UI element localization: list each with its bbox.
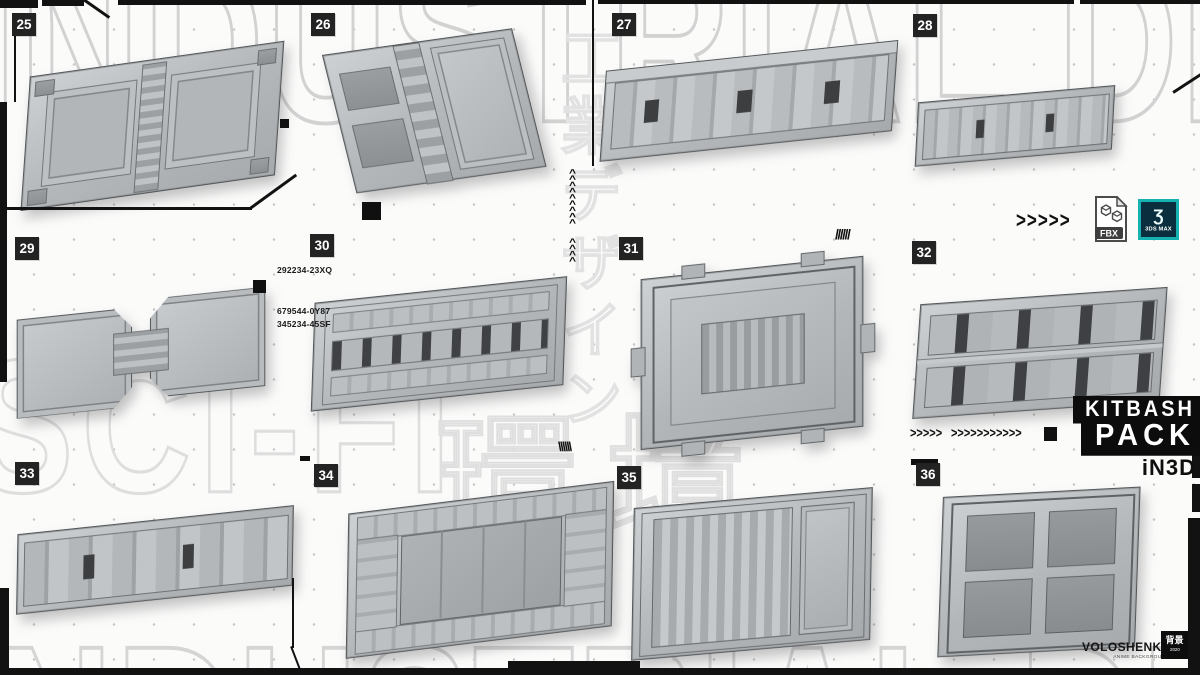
vertical-divider (592, 0, 594, 166)
kanji-stamp: 背景 2020 (1161, 631, 1188, 659)
model-26-render (322, 28, 544, 191)
marker-square (253, 280, 266, 293)
3dsmax-app-icon: Ʒ 3DS MAX (1138, 199, 1179, 240)
bottom-black-band (508, 661, 640, 670)
border-segment (118, 0, 586, 5)
model-31-render (641, 256, 862, 448)
3dsmax-label: 3DS MAX (1145, 225, 1172, 231)
divider-diagonal (249, 174, 297, 210)
marker-square (362, 202, 381, 220)
model-35-render (631, 487, 871, 659)
item-number-34: 34 (314, 464, 338, 487)
model-28-render (915, 85, 1114, 165)
3dsmax-logo-glyph: Ʒ (1153, 207, 1163, 224)
hatch-slashes-icon: \\\\\\ (558, 439, 571, 454)
item-number-32: 32 (912, 241, 936, 264)
author-credit: VOLOSHENKO ANIME BACKGROUNDS (1082, 640, 1160, 663)
item-number-36: 36 (916, 463, 940, 486)
author-subtitle: ANIME BACKGROUNDS (1113, 654, 1160, 659)
serial-code: 345234-45SF (277, 319, 331, 329)
author-name: VOLOSHENKO (1082, 640, 1160, 654)
model-34-render (346, 481, 613, 657)
kitbash-title-line2: PACK (1081, 419, 1200, 456)
item-number-25: 25 (12, 13, 36, 36)
corner-diagonal (1172, 73, 1200, 93)
item-number-26: 26 (311, 13, 335, 36)
fbx-file-icon: FBX (1094, 196, 1128, 242)
left-border-bar (0, 102, 7, 382)
chevron-arrows-up-icon: >>>>>>>>> (566, 168, 579, 224)
right-border-bar (1188, 518, 1200, 675)
item-number-27: 27 (612, 13, 636, 36)
model-25-render (21, 41, 283, 209)
marker-bar (300, 456, 310, 461)
border-segment (0, 0, 38, 8)
border-slash (82, 0, 110, 19)
chevron-arrows-icon: >>>>> (1016, 208, 1071, 234)
marker-square (1044, 427, 1057, 441)
item-number-31: 31 (619, 237, 643, 260)
border-segment (1080, 0, 1200, 4)
item-number-35: 35 (617, 466, 641, 489)
border-segment (598, 0, 1074, 4)
left-thin-line (14, 36, 16, 102)
model-27-render (600, 40, 897, 160)
item-number-28: 28 (913, 14, 937, 37)
model-33-render (16, 505, 292, 612)
item-number-30: 30 (310, 234, 334, 257)
chevron-arrows-icon: >>>>> (910, 426, 942, 441)
model-30-render (311, 276, 565, 409)
serial-code: 679544-0Y87 (277, 306, 330, 316)
chevron-arrows-up-icon: >>>> (566, 237, 579, 262)
serial-code: 292234-23XQ (277, 265, 332, 275)
studio-logo: iN3D (1142, 455, 1200, 481)
hatch-slashes-icon: ////// (835, 226, 849, 242)
stamp-year: 2020 (1170, 648, 1180, 652)
border-segment (42, 0, 84, 6)
bottom-left-bar (0, 588, 9, 675)
divider-line (0, 207, 252, 210)
item-number-29: 29 (15, 237, 39, 260)
right-border-segment (1192, 484, 1200, 512)
model-36-render (937, 487, 1138, 656)
kitbash-pack-logo: KITBASH PACK iN3D (1073, 396, 1200, 481)
fbx-label: FBX (1100, 229, 1118, 239)
bottom-vertical-line (292, 578, 294, 648)
item-number-33: 33 (15, 462, 39, 485)
model-29-render (17, 285, 264, 422)
stamp-kanji-text: 背景 (1165, 636, 1183, 645)
chevron-arrows-icon: >>>>>>>>>>> (951, 426, 1022, 441)
marker-square (280, 119, 289, 128)
poster-canvas: INDUSTRIAL DESIGN SCI-FI 環境 工業デザイン INDUS… (0, 0, 1200, 675)
